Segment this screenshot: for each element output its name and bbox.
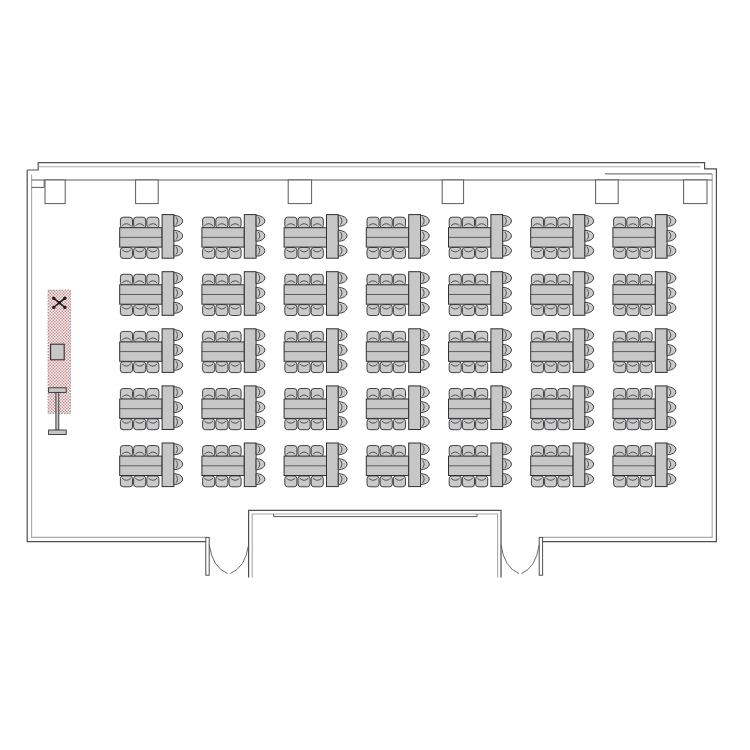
table-unit-r2c1 bbox=[120, 272, 183, 316]
chair-icon bbox=[421, 302, 430, 313]
chair-icon bbox=[640, 389, 652, 400]
head-table bbox=[655, 215, 667, 259]
head-table bbox=[655, 272, 667, 316]
chair-icon bbox=[311, 331, 323, 342]
chair-icon bbox=[256, 459, 265, 470]
chair-icon bbox=[449, 362, 461, 373]
screen-stem bbox=[56, 392, 59, 430]
chair-icon bbox=[667, 215, 676, 226]
table-unit-r1c3 bbox=[284, 215, 347, 259]
door-arc-left-entry-leaf-a bbox=[209, 545, 227, 574]
chair-icon bbox=[667, 359, 676, 370]
chair-icon bbox=[367, 248, 379, 259]
chair-icon bbox=[503, 245, 512, 256]
chair-icon bbox=[134, 476, 146, 487]
chair-icon bbox=[120, 305, 132, 316]
chair-icon bbox=[311, 305, 323, 316]
chair-icon bbox=[256, 474, 265, 485]
chair-icon bbox=[545, 446, 557, 457]
wall-vestibule-inner bbox=[252, 514, 497, 578]
chair-icon bbox=[229, 248, 241, 259]
chair-icon bbox=[393, 362, 405, 373]
head-table bbox=[573, 386, 585, 430]
table-unit-r5c2 bbox=[202, 443, 265, 487]
chair-icon bbox=[545, 476, 557, 487]
chair-icon bbox=[338, 245, 347, 256]
chair-icon bbox=[545, 389, 557, 400]
chair-icon bbox=[285, 217, 297, 228]
chair-icon bbox=[174, 230, 183, 241]
chair-icon bbox=[531, 331, 543, 342]
chair-icon bbox=[558, 476, 570, 487]
chair-icon bbox=[216, 305, 228, 316]
chair-icon bbox=[545, 305, 557, 316]
chair-icon bbox=[476, 305, 488, 316]
chair-icon bbox=[558, 331, 570, 342]
chair-icon bbox=[367, 446, 379, 457]
chair-icon bbox=[134, 446, 146, 457]
pilaster bbox=[288, 180, 311, 204]
chair-icon bbox=[558, 274, 570, 285]
chair-icon bbox=[147, 476, 159, 487]
chair-icon bbox=[174, 387, 183, 398]
head-table bbox=[327, 443, 339, 487]
chair-icon bbox=[256, 444, 265, 455]
chair-icon bbox=[120, 362, 132, 373]
chair-icon bbox=[338, 417, 347, 428]
chair-icon bbox=[338, 387, 347, 398]
chair-icon bbox=[380, 419, 392, 430]
chair-icon bbox=[203, 248, 215, 259]
head-table bbox=[655, 329, 667, 373]
chair-icon bbox=[585, 459, 594, 470]
chair-icon bbox=[147, 446, 159, 457]
chair-icon bbox=[174, 215, 183, 226]
table-unit-r1c7 bbox=[613, 215, 676, 259]
chair-icon bbox=[298, 274, 310, 285]
chair-icon bbox=[256, 402, 265, 413]
chair-icon bbox=[256, 302, 265, 313]
table-grid bbox=[120, 215, 676, 487]
chair-icon bbox=[393, 389, 405, 400]
chair-icon bbox=[585, 287, 594, 298]
chair-icon bbox=[531, 419, 543, 430]
chair-icon bbox=[256, 230, 265, 241]
chair-icon bbox=[311, 419, 323, 430]
chair-icon bbox=[174, 417, 183, 428]
chair-icon bbox=[174, 402, 183, 413]
head-table bbox=[327, 272, 339, 316]
chair-icon bbox=[120, 419, 132, 430]
chair-icon bbox=[393, 419, 405, 430]
chair-icon bbox=[338, 230, 347, 241]
chair-icon bbox=[545, 248, 557, 259]
screen-bar bbox=[49, 388, 67, 393]
chair-icon bbox=[174, 302, 183, 313]
chair-icon bbox=[203, 389, 215, 400]
chair-icon bbox=[174, 444, 183, 455]
chair-icon bbox=[667, 345, 676, 356]
chair-icon bbox=[585, 245, 594, 256]
chair-icon bbox=[667, 245, 676, 256]
projector-table bbox=[51, 344, 65, 360]
table-unit-r3c3 bbox=[284, 329, 347, 373]
chair-icon bbox=[667, 417, 676, 428]
chair-icon bbox=[503, 230, 512, 241]
chair-icon bbox=[285, 248, 297, 259]
chair-icon bbox=[627, 362, 639, 373]
head-table bbox=[162, 215, 174, 259]
chair-icon bbox=[421, 287, 430, 298]
head-table bbox=[162, 386, 174, 430]
chair-icon bbox=[203, 419, 215, 430]
chair-icon bbox=[174, 245, 183, 256]
table-unit-r4c3 bbox=[284, 386, 347, 430]
chair-icon bbox=[134, 248, 146, 259]
door-arc-left-entry-leaf-b bbox=[230, 545, 248, 574]
chair-icon bbox=[285, 362, 297, 373]
table-unit-r4c1 bbox=[120, 386, 183, 430]
chair-icon bbox=[476, 446, 488, 457]
chair-icon bbox=[311, 389, 323, 400]
head-table bbox=[573, 443, 585, 487]
table-unit-r3c2 bbox=[202, 329, 265, 373]
chair-icon bbox=[627, 274, 639, 285]
chair-icon bbox=[558, 419, 570, 430]
chair-icon bbox=[503, 215, 512, 226]
pilaster bbox=[45, 180, 65, 204]
chair-icon bbox=[585, 330, 594, 341]
wall-top-left-step bbox=[32, 180, 45, 187]
table-unit-r4c4 bbox=[366, 386, 429, 430]
chair-icon bbox=[421, 359, 430, 370]
head-table bbox=[491, 329, 503, 373]
chair-icon bbox=[585, 402, 594, 413]
chair-icon bbox=[558, 248, 570, 259]
chair-icon bbox=[614, 419, 626, 430]
head-table bbox=[244, 386, 256, 430]
chair-icon bbox=[503, 474, 512, 485]
chair-icon bbox=[640, 362, 652, 373]
pilaster bbox=[684, 180, 707, 204]
chair-icon bbox=[503, 345, 512, 356]
chair-icon bbox=[558, 217, 570, 228]
chair-icon bbox=[585, 302, 594, 313]
chair-icon bbox=[614, 389, 626, 400]
chair-icon bbox=[229, 389, 241, 400]
chair-icon bbox=[203, 217, 215, 228]
chair-icon bbox=[380, 305, 392, 316]
head-table bbox=[491, 386, 503, 430]
chair-icon bbox=[298, 419, 310, 430]
chair-icon bbox=[338, 359, 347, 370]
table-unit-r2c2 bbox=[202, 272, 265, 316]
chair-icon bbox=[627, 476, 639, 487]
symbol-dot bbox=[58, 301, 61, 304]
head-table bbox=[573, 215, 585, 259]
chair-icon bbox=[120, 446, 132, 457]
chair-icon bbox=[614, 217, 626, 228]
chair-icon bbox=[311, 476, 323, 487]
chair-icon bbox=[558, 362, 570, 373]
chair-icon bbox=[147, 217, 159, 228]
table-unit-r1c4 bbox=[366, 215, 429, 259]
head-table bbox=[244, 215, 256, 259]
chair-icon bbox=[449, 389, 461, 400]
chair-icon bbox=[449, 331, 461, 342]
chair-icon bbox=[640, 217, 652, 228]
chair-icon bbox=[256, 330, 265, 341]
chair-icon bbox=[216, 476, 228, 487]
chair-icon bbox=[476, 274, 488, 285]
wall-vestibule-outer bbox=[249, 510, 501, 577]
chair-icon bbox=[640, 476, 652, 487]
chair-icon bbox=[338, 459, 347, 470]
chair-icon bbox=[614, 331, 626, 342]
chair-icon bbox=[147, 389, 159, 400]
chair-icon bbox=[229, 362, 241, 373]
chair-icon bbox=[585, 359, 594, 370]
table-unit-r3c7 bbox=[613, 329, 676, 373]
chair-icon bbox=[147, 419, 159, 430]
chair-icon bbox=[367, 217, 379, 228]
chair-icon bbox=[338, 330, 347, 341]
chair-icon bbox=[367, 305, 379, 316]
chair-icon bbox=[627, 217, 639, 228]
head-table bbox=[409, 386, 421, 430]
chair-icon bbox=[229, 476, 241, 487]
chair-icon bbox=[120, 389, 132, 400]
pilaster bbox=[442, 180, 463, 204]
chair-icon bbox=[380, 248, 392, 259]
chair-icon bbox=[174, 459, 183, 470]
chair-icon bbox=[640, 419, 652, 430]
chair-icon bbox=[147, 305, 159, 316]
chair-icon bbox=[585, 474, 594, 485]
chair-icon bbox=[338, 402, 347, 413]
head-table bbox=[409, 272, 421, 316]
chair-icon bbox=[462, 389, 474, 400]
chair-icon bbox=[380, 217, 392, 228]
chair-icon bbox=[421, 417, 430, 428]
chair-icon bbox=[134, 305, 146, 316]
chair-icon bbox=[285, 274, 297, 285]
chair-icon bbox=[203, 274, 215, 285]
chair-icon bbox=[134, 217, 146, 228]
chair-icon bbox=[421, 215, 430, 226]
chair-icon bbox=[338, 215, 347, 226]
chair-icon bbox=[640, 446, 652, 457]
chair-icon bbox=[216, 248, 228, 259]
chair-icon bbox=[298, 248, 310, 259]
table-unit-r2c3 bbox=[284, 272, 347, 316]
chair-icon bbox=[311, 274, 323, 285]
chair-icon bbox=[229, 305, 241, 316]
chair-icon bbox=[545, 217, 557, 228]
chair-icon bbox=[285, 305, 297, 316]
chair-icon bbox=[503, 302, 512, 313]
chair-icon bbox=[380, 362, 392, 373]
head-table bbox=[655, 386, 667, 430]
chair-icon bbox=[421, 345, 430, 356]
chair-icon bbox=[585, 273, 594, 284]
chair-icon bbox=[545, 362, 557, 373]
chair-icon bbox=[120, 217, 132, 228]
chair-icon bbox=[367, 389, 379, 400]
chair-icon bbox=[216, 362, 228, 373]
head-table bbox=[491, 215, 503, 259]
table-unit-r3c6 bbox=[531, 329, 594, 373]
chair-icon bbox=[203, 305, 215, 316]
chair-icon bbox=[449, 217, 461, 228]
chair-icon bbox=[174, 474, 183, 485]
chair-icon bbox=[229, 419, 241, 430]
chair-icon bbox=[256, 387, 265, 398]
chair-icon bbox=[476, 248, 488, 259]
head-table bbox=[409, 215, 421, 259]
chair-icon bbox=[380, 389, 392, 400]
chair-icon bbox=[285, 446, 297, 457]
chair-icon bbox=[216, 274, 228, 285]
chair-icon bbox=[585, 417, 594, 428]
table-unit-r2c6 bbox=[531, 272, 594, 316]
chair-icon bbox=[229, 331, 241, 342]
chair-icon bbox=[120, 248, 132, 259]
chair-icon bbox=[311, 248, 323, 259]
chair-icon bbox=[503, 359, 512, 370]
chair-icon bbox=[216, 446, 228, 457]
head-table bbox=[491, 443, 503, 487]
table-unit-r3c4 bbox=[366, 329, 429, 373]
door-arc-right-entry-leaf-a bbox=[501, 545, 519, 574]
table-unit-r2c5 bbox=[449, 272, 512, 316]
chair-icon bbox=[585, 345, 594, 356]
chair-icon bbox=[531, 476, 543, 487]
chair-icon bbox=[147, 274, 159, 285]
chair-icon bbox=[298, 389, 310, 400]
chair-icon bbox=[627, 248, 639, 259]
chair-icon bbox=[614, 446, 626, 457]
chair-icon bbox=[216, 331, 228, 342]
chair-icon bbox=[203, 331, 215, 342]
chair-icon bbox=[503, 387, 512, 398]
head-table bbox=[162, 272, 174, 316]
chair-icon bbox=[229, 446, 241, 457]
symbol-dot bbox=[52, 306, 55, 309]
chair-icon bbox=[627, 446, 639, 457]
chair-icon bbox=[503, 330, 512, 341]
chair-icon bbox=[203, 362, 215, 373]
chair-icon bbox=[216, 217, 228, 228]
table-unit-r2c7 bbox=[613, 272, 676, 316]
chair-icon bbox=[393, 248, 405, 259]
chair-icon bbox=[393, 274, 405, 285]
chair-icon bbox=[421, 444, 430, 455]
chair-icon bbox=[216, 419, 228, 430]
chair-icon bbox=[462, 274, 474, 285]
chair-icon bbox=[380, 331, 392, 342]
head-table bbox=[162, 329, 174, 373]
chair-icon bbox=[640, 274, 652, 285]
chair-icon bbox=[367, 362, 379, 373]
symbol-dot bbox=[63, 306, 66, 309]
chair-icon bbox=[476, 217, 488, 228]
chair-icon bbox=[256, 287, 265, 298]
chair-icon bbox=[462, 248, 474, 259]
table-unit-r5c1 bbox=[120, 443, 183, 487]
chair-icon bbox=[545, 419, 557, 430]
chair-icon bbox=[614, 305, 626, 316]
chair-icon bbox=[393, 217, 405, 228]
chair-icon bbox=[667, 387, 676, 398]
chair-icon bbox=[120, 274, 132, 285]
chair-icon bbox=[421, 402, 430, 413]
chair-icon bbox=[667, 230, 676, 241]
chair-icon bbox=[531, 248, 543, 259]
chair-icon bbox=[667, 444, 676, 455]
chair-icon bbox=[229, 274, 241, 285]
table-unit-r4c2 bbox=[202, 386, 265, 430]
screen-base bbox=[49, 430, 67, 435]
chair-icon bbox=[174, 273, 183, 284]
chair-icon bbox=[338, 474, 347, 485]
chair-icon bbox=[174, 345, 183, 356]
chair-icon bbox=[627, 331, 639, 342]
chair-icon bbox=[667, 474, 676, 485]
table-unit-r1c2 bbox=[202, 215, 265, 259]
chair-icon bbox=[285, 389, 297, 400]
table-unit-r1c1 bbox=[120, 215, 183, 259]
chair-icon bbox=[462, 446, 474, 457]
head-table bbox=[244, 272, 256, 316]
table-unit-r1c6 bbox=[531, 215, 594, 259]
chair-icon bbox=[614, 362, 626, 373]
chair-icon bbox=[667, 330, 676, 341]
head-table bbox=[573, 272, 585, 316]
door-arc-right-entry-leaf-b bbox=[521, 545, 539, 574]
head-table bbox=[573, 329, 585, 373]
table-unit-r4c5 bbox=[449, 386, 512, 430]
head-table bbox=[327, 215, 339, 259]
chair-icon bbox=[338, 302, 347, 313]
chair-icon bbox=[667, 459, 676, 470]
chair-icon bbox=[476, 476, 488, 487]
chair-icon bbox=[367, 476, 379, 487]
head-table bbox=[244, 443, 256, 487]
floorplan-page bbox=[0, 0, 750, 750]
chair-icon bbox=[503, 417, 512, 428]
chair-icon bbox=[585, 215, 594, 226]
chair-icon bbox=[531, 446, 543, 457]
chair-icon bbox=[134, 389, 146, 400]
chair-icon bbox=[558, 446, 570, 457]
chair-icon bbox=[476, 389, 488, 400]
chair-icon bbox=[147, 331, 159, 342]
chair-icon bbox=[256, 345, 265, 356]
chair-icon bbox=[367, 331, 379, 342]
chair-icon bbox=[134, 362, 146, 373]
chair-icon bbox=[640, 248, 652, 259]
chair-icon bbox=[380, 446, 392, 457]
chair-icon bbox=[558, 305, 570, 316]
left-entry-jamb bbox=[206, 537, 209, 575]
chair-icon bbox=[338, 345, 347, 356]
chair-icon bbox=[285, 419, 297, 430]
table-unit-r4c6 bbox=[531, 386, 594, 430]
chair-icon bbox=[476, 419, 488, 430]
chair-icon bbox=[134, 331, 146, 342]
chair-icon bbox=[256, 215, 265, 226]
